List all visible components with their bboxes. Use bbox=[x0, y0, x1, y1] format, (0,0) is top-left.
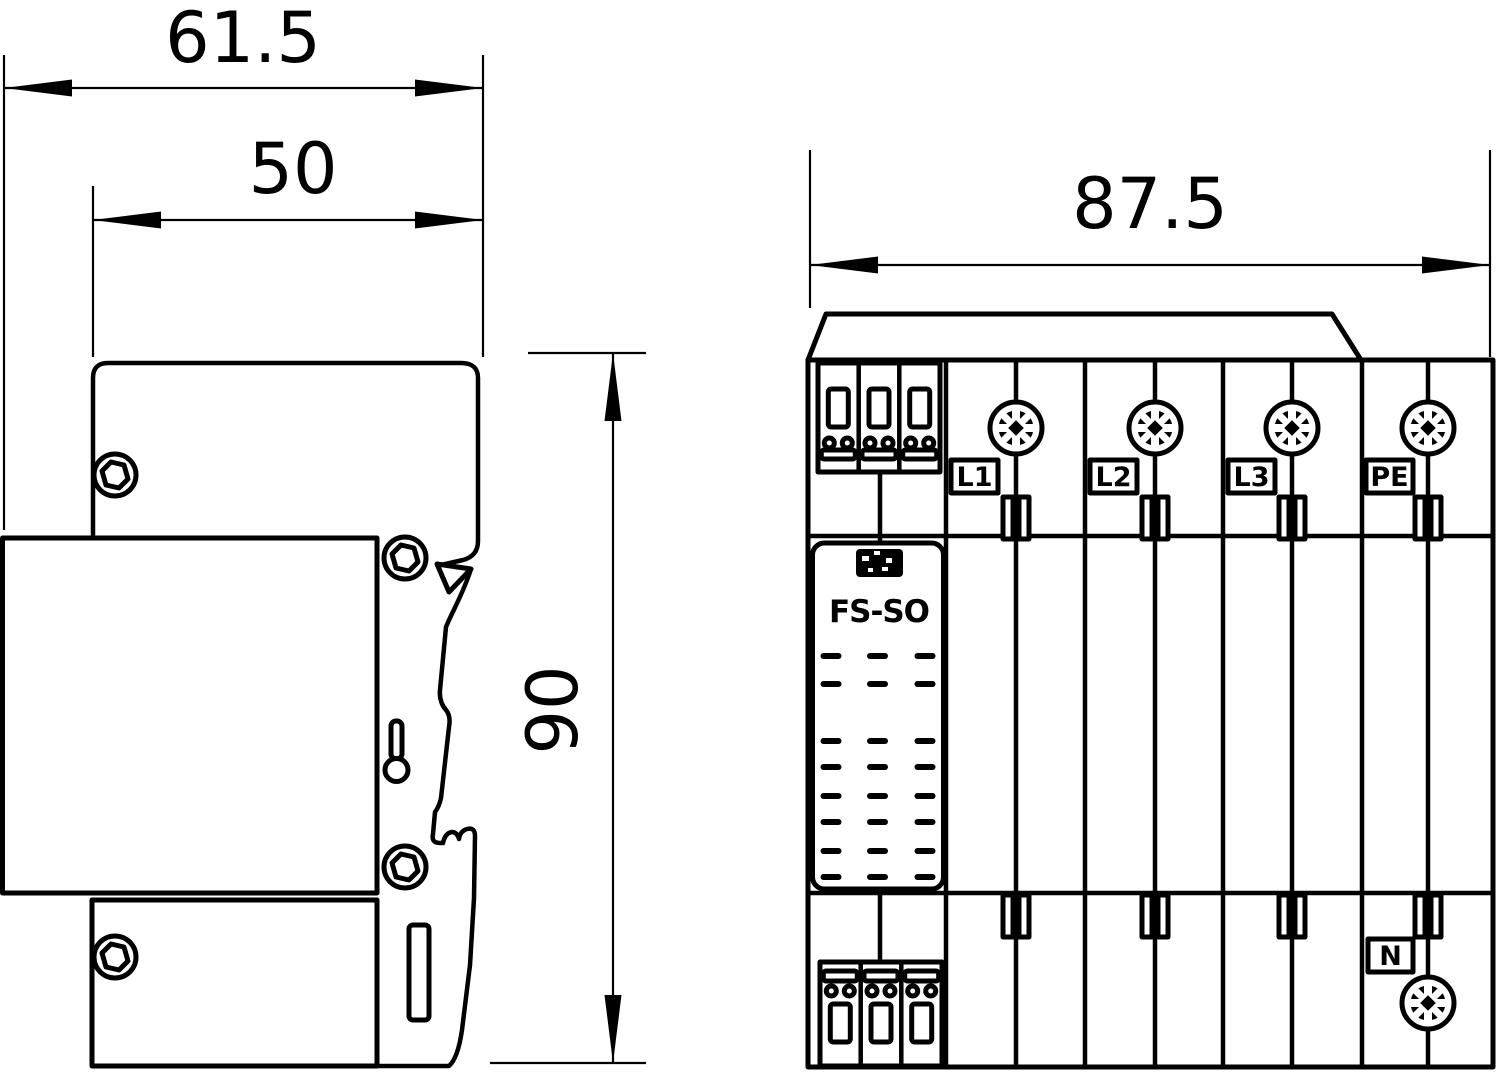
hex-screw-icon bbox=[384, 537, 426, 579]
terminal-unit-icon bbox=[903, 389, 937, 459]
technical-drawing: FS-SO L1 bbox=[0, 0, 1500, 1073]
terminal-label-l2: L2 bbox=[1090, 460, 1137, 493]
dimension-value: 90 bbox=[512, 665, 594, 754]
svg-text:L3: L3 bbox=[1234, 462, 1270, 493]
dimension-value: 61.5 bbox=[165, 0, 321, 79]
mounting-slot bbox=[409, 925, 429, 1020]
arrowhead bbox=[605, 995, 622, 1063]
terminal-unit-icon bbox=[823, 971, 857, 1042]
terminal-label-n: N bbox=[1368, 939, 1413, 972]
terminal-unit-icon bbox=[862, 389, 896, 459]
svg-text:L1: L1 bbox=[957, 462, 993, 493]
hex-screw-icon bbox=[94, 454, 136, 496]
brand-logo-icon bbox=[856, 549, 903, 577]
bottom-terminal-block bbox=[820, 962, 942, 1066]
arrowhead bbox=[415, 212, 483, 229]
side-view bbox=[3, 363, 479, 1066]
svg-text:N: N bbox=[1379, 941, 1402, 972]
arrowhead bbox=[415, 80, 483, 97]
hex-screw-icon bbox=[384, 846, 426, 888]
top-cap bbox=[93, 363, 478, 565]
dimension-90: 90 bbox=[490, 353, 646, 1063]
product-label: FS-SO bbox=[829, 594, 929, 630]
svg-text:L2: L2 bbox=[1096, 462, 1132, 493]
svg-text:PE: PE bbox=[1370, 462, 1408, 493]
front-view: FS-SO L1 bbox=[808, 314, 1493, 1067]
arrowhead bbox=[93, 212, 161, 229]
terminal-unit-icon bbox=[864, 971, 898, 1042]
hex-screw-icon bbox=[94, 936, 136, 978]
dimension-61-5: 61.5 bbox=[4, 0, 483, 530]
arrowhead bbox=[605, 353, 622, 421]
release-indicator-icon bbox=[385, 721, 408, 782]
top-terminal-block bbox=[818, 363, 940, 472]
terminal-label-l1: L1 bbox=[951, 460, 998, 493]
dimension-value: 50 bbox=[248, 128, 337, 210]
arrowhead bbox=[1422, 257, 1490, 274]
arrowhead bbox=[810, 257, 878, 274]
arrowhead bbox=[4, 80, 72, 97]
terminal-label-l3: L3 bbox=[1228, 460, 1275, 493]
bottom-cap bbox=[92, 900, 377, 1066]
terminal-unit-icon bbox=[821, 389, 855, 459]
terminal-unit-icon bbox=[905, 971, 939, 1042]
dimension-50: 50 bbox=[93, 128, 483, 357]
terminal-label-pe: PE bbox=[1366, 460, 1413, 493]
device-roof bbox=[808, 314, 1361, 360]
label-plate: FS-SO bbox=[813, 543, 944, 889]
main-body bbox=[3, 538, 378, 893]
dimension-value: 87.5 bbox=[1072, 163, 1228, 245]
